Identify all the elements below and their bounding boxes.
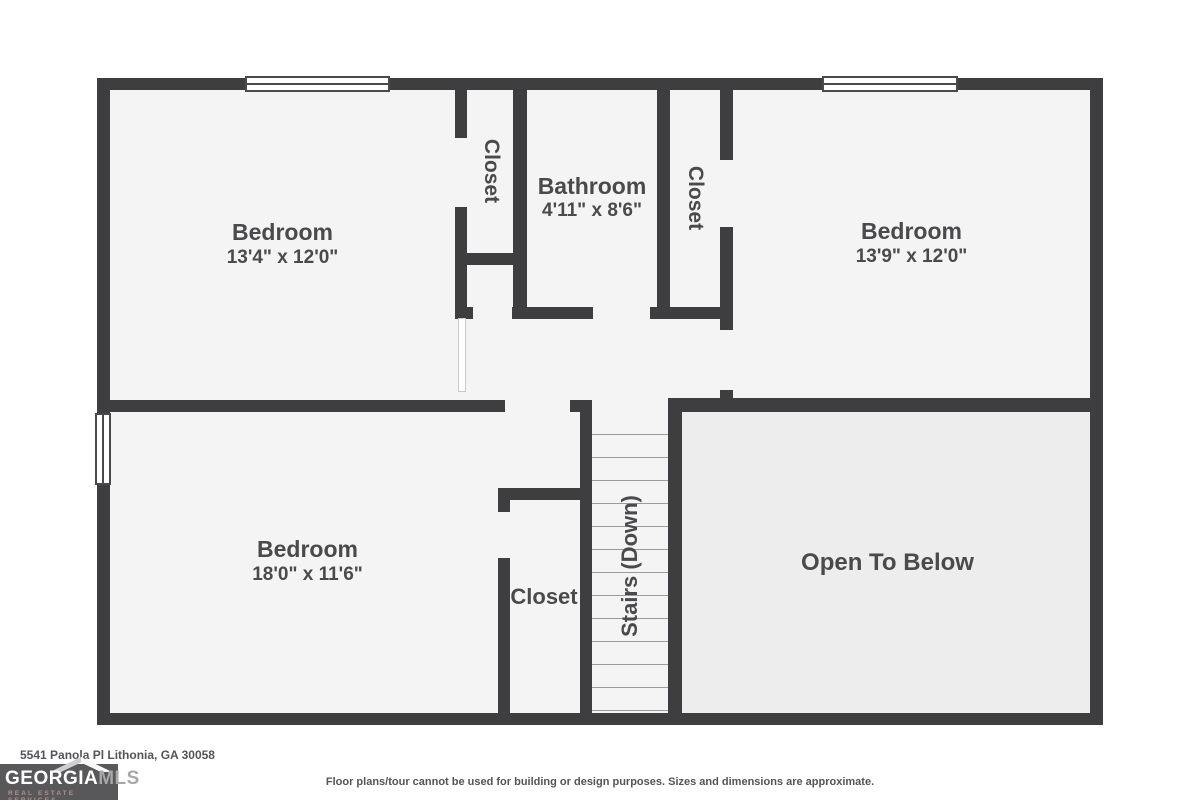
wall-exterior-bottom [97,713,1103,725]
room-closet-bottom-label: Closet [510,584,577,610]
wall-bedroom-divider [97,400,505,412]
room-closet-left-label: Closet [479,139,503,203]
wall-open-below-top [668,398,1093,412]
room-closet-right-label: Closet [683,166,707,230]
wall-closet-right-upper [720,90,733,160]
wall-closet-bottom-left-upper [498,500,510,512]
floorplan-page: Bedroom 13'4" x 12'0" Bathroom 4'11" x 8… [0,0,1200,800]
disclaimer-text: Floor plans/tour cannot be used for buil… [0,776,1200,788]
wall-bathroom-right [657,90,670,307]
wall-closet-bottom-top [498,488,592,500]
window-icon [245,76,390,92]
open-to-below-area [682,412,1093,713]
wall-closet-bottom-left-lower [498,558,510,725]
wall-open-below-left [668,412,682,725]
wall-stairs-corner [570,400,592,412]
stairs-label: Stairs (Down) [617,495,643,637]
door-icon [458,318,466,392]
window-icon [822,76,958,92]
wall-hall-top-c [650,307,733,319]
logo-tagline: REAL ESTATE SERVICES [8,790,118,800]
wall-hall-top-b [512,307,593,319]
wall-stairs-left [580,412,592,725]
wall-bathroom-left [513,90,527,310]
window-icon [95,413,111,485]
wall-closet-left-upper [455,90,467,138]
